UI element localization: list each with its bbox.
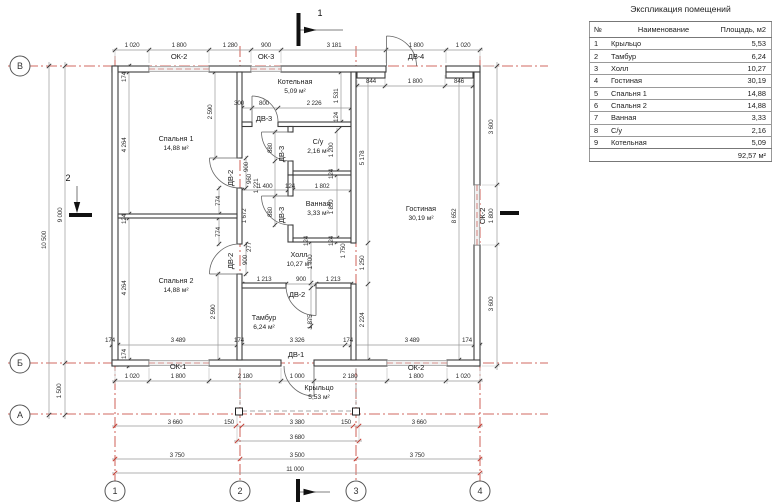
porch-post (353, 408, 360, 415)
opening-label: ОК-2 (171, 52, 187, 61)
opening-label: ДВ-3 (256, 114, 272, 123)
table-row: 2Тамбур6,24 (590, 50, 772, 62)
room-area-label: 14,88 м² (163, 145, 189, 152)
dimension-label: 124 (285, 183, 296, 190)
dimension-label: 1 500 (56, 383, 63, 398)
room-name-label: Спальня 2 (159, 276, 194, 285)
opening-label: ДВ-2 (289, 290, 305, 299)
table-cell: 3,33 (718, 112, 772, 124)
table-cell: Гостиная (609, 75, 718, 87)
opening-label: ДВ-2 (226, 170, 235, 186)
opening-label: ДВ-3 (277, 207, 286, 223)
table-cell: 1 (590, 38, 610, 50)
dimension-label: 1 200 (328, 142, 335, 157)
dimension-label: 1 020 (456, 373, 471, 380)
table-row: 7Ванная3,33 (590, 112, 772, 124)
dimension-label: 3 750 (170, 452, 185, 459)
dimension-label: 11 000 (286, 466, 304, 473)
dimension-label: 124 (303, 235, 310, 246)
room-area-label: 14,88 м² (163, 287, 189, 294)
table-row: 9Котельная5,09 (590, 137, 772, 149)
opening-label: ДВ-2 (226, 253, 235, 269)
dimension-label: 1 250 (359, 255, 366, 270)
opening-label: ДВ-3 (277, 146, 286, 162)
dimension-label: 900 (261, 42, 272, 49)
schedule-header-row: № Наименование Площадь, м2 (590, 22, 772, 38)
table-cell: 5 (590, 87, 610, 99)
room-area-label: 10,27 м² (286, 261, 312, 268)
table-cell: Холл (609, 62, 718, 74)
floor-plan-drawing: 1 0201 8001 2809003 1811 8001 0208441 80… (0, 0, 585, 502)
dimension-label: 174 (105, 337, 116, 344)
door-dv3-bath (262, 196, 291, 225)
dimension-label: 3 750 (410, 452, 425, 459)
table-cell: 10,27 (718, 62, 772, 74)
room-name-label: Спальня 1 (159, 134, 194, 143)
dimension-label: 1 800 (408, 78, 423, 85)
door-dv2-bedroom2 (210, 244, 240, 274)
dimension-label: 1 531 (333, 88, 340, 103)
room-name-label: Котельная (278, 77, 313, 86)
dimension-label: 300 (234, 100, 245, 107)
axis-marker-label: 3 (353, 486, 358, 496)
room-area-label: 2,16 м² (307, 148, 329, 155)
table-cell: 30,19 (718, 75, 772, 87)
room-name-label: С/у (313, 137, 324, 146)
room-area-label: 5,53 м² (308, 394, 330, 401)
dimension-label: 1 020 (125, 42, 140, 49)
section-2-right-mark (500, 211, 519, 215)
dimension-label: 774 (215, 195, 222, 206)
room-name-label: Крыльцо (304, 383, 333, 392)
col-header-number: № (590, 22, 610, 38)
dimension-label: 1 750 (340, 243, 347, 258)
axis-centerlines (8, 46, 548, 482)
dimension-label: 900 (242, 254, 249, 265)
dimension-label: 774 (215, 226, 222, 237)
dimension-label: 1 800 (171, 373, 186, 380)
table-cell: Ванная (609, 112, 718, 124)
table-row: 1Крыльцо5,53 (590, 38, 772, 50)
dimension-label: 150 (224, 419, 235, 426)
table-cell: Котельная (609, 137, 718, 149)
dimension-label: 4 264 (121, 280, 128, 295)
section-2-left-mark (69, 186, 92, 217)
table-cell: 5,09 (718, 137, 772, 149)
axis-row-marker: В (10, 56, 30, 76)
dimension-label: 3 489 (171, 337, 186, 344)
opening-label: ОК-3 (258, 52, 274, 61)
dimension-label: 174 (343, 337, 354, 344)
schedule-title: Экспликация помещений (589, 4, 772, 14)
opening-label: ДВ-4 (408, 52, 424, 61)
axis-marker-label: 4 (477, 486, 482, 496)
room-area-label: 3,33 м² (307, 210, 329, 217)
axis-col-marker: 3 (346, 481, 366, 501)
dimension-label: 5 178 (359, 150, 366, 165)
dimension-label: 2 590 (210, 304, 217, 319)
table-cell: Спальня 1 (609, 87, 718, 99)
dimension-label: 8 652 (451, 208, 458, 223)
table-cell: 9 (590, 137, 610, 149)
dimension-label: 3 500 (290, 452, 305, 459)
dimension-label: 174 (121, 348, 128, 359)
dimension-label: 900 (296, 276, 307, 283)
dimension-label: 9 000 (57, 207, 64, 222)
table-cell: 4 (590, 75, 610, 87)
section-1-bottom-mark (296, 479, 330, 502)
table-cell: Тамбур (609, 50, 718, 62)
table-row: 5Спальня 114,88 (590, 87, 772, 99)
axis-marker-label: 2 (237, 486, 242, 496)
dimension-label: 900 (243, 161, 250, 172)
axis-col-marker: 1 (105, 481, 125, 501)
axis-row-marker: Б (10, 353, 30, 373)
axis-marker-label: В (17, 61, 23, 71)
dimension-label: 1 020 (125, 373, 140, 380)
dimension-label: 3 600 (488, 119, 495, 134)
dimension-label: 2 180 (343, 373, 358, 380)
section-label: 1 (317, 8, 322, 18)
room-name-label: Ванная (306, 199, 331, 208)
dimension-label: 10 500 (41, 230, 48, 249)
table-row: 8С/у2,16 (590, 124, 772, 136)
dimension-label: 1 213 (326, 276, 341, 283)
room-name-label: Гостиная (406, 204, 436, 213)
axis-marker-label: А (17, 410, 23, 420)
dimension-label: 1 221 (253, 178, 260, 193)
dimension-label: 4 264 (121, 137, 128, 152)
opening-label: ОК-2 (408, 363, 424, 372)
dimension-label: 1 280 (223, 42, 238, 49)
axis-row-marker: А (10, 405, 30, 425)
door-dv3-wc (262, 132, 291, 161)
dimension-label: 844 (366, 78, 377, 85)
dimension-label: 1 800 (488, 208, 495, 223)
dimension-label: 3 489 (405, 337, 420, 344)
dimension-label: 174 (121, 71, 128, 82)
table-cell: 6,24 (718, 50, 772, 62)
room-area-label: 5,09 м² (284, 88, 306, 95)
room-name-label: Холл (291, 250, 308, 259)
table-row: 4Гостиная30,19 (590, 75, 772, 87)
dimension-label: 1 000 (290, 373, 305, 380)
dimension-label: 1 800 (409, 42, 424, 49)
dimension-label: 1 020 (456, 42, 471, 49)
table-cell: 2,16 (718, 124, 772, 136)
dimension-label: 3 680 (290, 434, 305, 441)
dimension-label: 880 (267, 142, 274, 153)
table-cell: Крыльцо (609, 38, 718, 50)
dimension-label: 1 802 (315, 183, 330, 190)
dimension-label: 846 (454, 78, 465, 85)
dimension-label: 3 660 (168, 419, 183, 426)
room-name-label: Тамбур (252, 313, 276, 322)
dimension-label: 3 660 (412, 419, 427, 426)
table-cell: 8 (590, 124, 610, 136)
opening-label: ОК-2 (478, 208, 487, 224)
table-cell: 14,88 (718, 99, 772, 111)
table-cell: Спальня 2 (609, 99, 718, 111)
table-cell: 14,88 (718, 87, 772, 99)
dimension-label: 1 800 (172, 42, 187, 49)
dimension-label: 124 (121, 213, 128, 224)
section-label: 2 (65, 173, 70, 183)
table-row: 6Спальня 214,88 (590, 99, 772, 111)
room-area-label: 6,24 м² (253, 324, 275, 331)
schedule-table: № Наименование Площадь, м2 1Крыльцо5,532… (589, 21, 772, 162)
room-schedule: Экспликация помещений № Наименование Пло… (589, 2, 772, 162)
dimension-label: 124 (328, 168, 335, 179)
dimension-label: 3 600 (488, 296, 495, 311)
table-cell: 3 (590, 62, 610, 74)
dimension-label: 3 326 (290, 337, 305, 344)
dimension-label: 1 213 (257, 276, 272, 283)
dimension-labels: 1 0201 8001 2809003 1811 8001 0208441 80… (41, 42, 495, 473)
col-header-area: Площадь, м2 (718, 22, 772, 38)
dimension-label: 2 226 (307, 100, 322, 107)
dimension-label: 174 (462, 337, 473, 344)
dimension-label: 174 (234, 337, 245, 344)
table-cell: 6 (590, 99, 610, 111)
axis-marker-label: Б (17, 358, 23, 368)
table-cell: 5,53 (718, 38, 772, 50)
axis-col-marker: 4 (470, 481, 490, 501)
opening-label: ОК-1 (170, 362, 186, 371)
cad-floor-plan-page: { "table": { "title": "Экспликация помещ… (0, 0, 775, 502)
opening-label: ДВ-1 (288, 350, 304, 359)
dimension-label: 150 (341, 419, 352, 426)
table-cell: С/у (609, 124, 718, 136)
room-area-label: 30,19 м² (408, 215, 434, 222)
door-dv4 (387, 36, 417, 66)
dimension-label: 2 224 (359, 312, 366, 327)
axis-col-marker: 2 (230, 481, 250, 501)
dimension-label: 277 (246, 241, 253, 252)
table-cell: 2 (590, 50, 610, 62)
dimension-label: 1 875 (307, 314, 314, 329)
dimension-label: 124 (333, 111, 340, 122)
table-cell: 7 (590, 112, 610, 124)
col-header-name: Наименование (609, 22, 718, 38)
dimension-label: 2 180 (238, 373, 253, 380)
dimension-label: 2 590 (207, 104, 214, 119)
door-dv2-bedroom1 (210, 158, 240, 188)
dimension-label: 124 (328, 235, 335, 246)
axis-marker-label: 1 (112, 486, 117, 496)
dimension-label: 3 380 (290, 419, 305, 426)
dimension-label: 3 181 (327, 42, 342, 49)
dimension-label: 1 800 (409, 373, 424, 380)
dimension-label: 800 (259, 100, 270, 107)
dimension-label: 960 (246, 173, 253, 184)
schedule-total-row: 92,57 м² (590, 149, 772, 161)
dimension-label: 1 672 (241, 208, 248, 223)
dimension-label: 880 (267, 206, 274, 217)
total-area: 92,57 м² (718, 149, 772, 161)
porch-post (236, 408, 243, 415)
table-row: 3Холл10,27 (590, 62, 772, 74)
